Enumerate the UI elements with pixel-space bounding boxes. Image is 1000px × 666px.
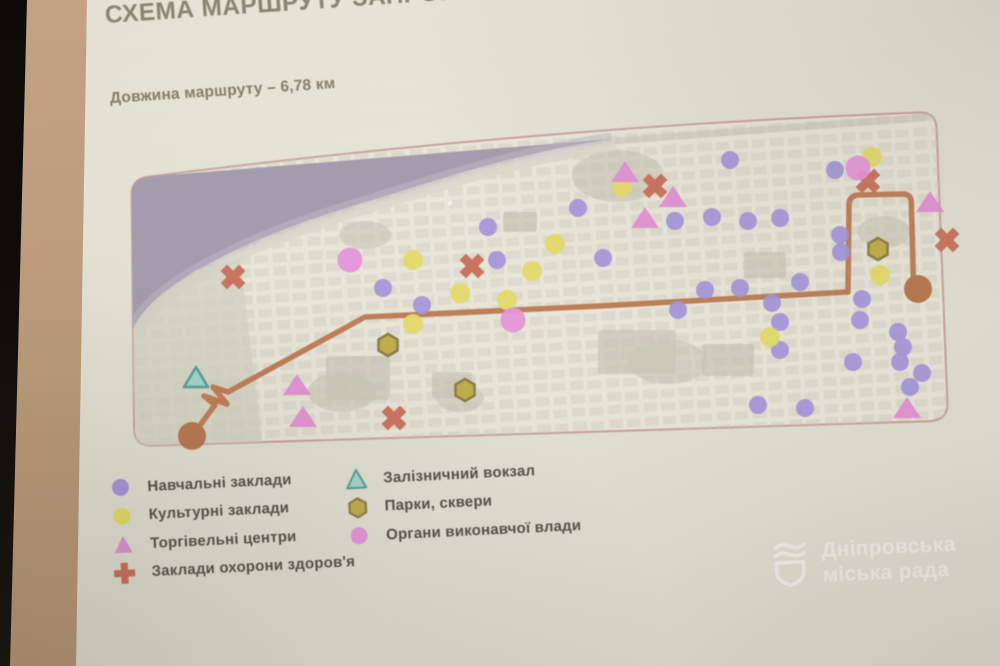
cultural-marker [760, 327, 780, 347]
legend-column-left: Навчальні закладиКультурні закладиТоргів… [108, 466, 356, 592]
railway-legend-icon [344, 466, 369, 491]
watermark-line2: міська рада [822, 557, 957, 588]
educational-marker [479, 218, 497, 236]
legend-label: Торгівельні центри [150, 527, 297, 551]
educational-marker [831, 226, 849, 244]
educational-marker [913, 364, 931, 382]
legend-label: Заклади охорони здоров'я [151, 553, 355, 580]
projection-photo: СХЕМА МАРШРУТУ ЗАПРОПОНОВАНОГО Довжина м… [0, 0, 1000, 666]
educational-marker [721, 151, 739, 169]
educational-marker [666, 212, 684, 230]
educational-marker [851, 311, 869, 329]
educational-marker [669, 301, 687, 319]
parks-marker [379, 334, 398, 356]
legend-label: Парки, сквери [384, 492, 492, 514]
executive-marker [338, 248, 363, 273]
educational-marker [894, 338, 912, 356]
cultural-marker [497, 290, 517, 310]
educational-marker [749, 396, 767, 414]
executive-marker [846, 156, 871, 181]
educational-marker [569, 199, 587, 217]
cultural-marker [403, 250, 423, 270]
cultural-marker [403, 314, 423, 334]
educational-marker [731, 279, 749, 297]
parks-marker [869, 238, 888, 260]
educational-marker [826, 161, 844, 179]
legend-label: Навчальні заклади [147, 471, 292, 495]
educational-marker [844, 353, 862, 371]
cultural-marker [870, 265, 890, 285]
city-council-watermark: Дніпровська міська рада [769, 532, 958, 593]
educational-marker [703, 208, 721, 226]
educational-marker [796, 399, 814, 417]
health-legend-icon [112, 560, 137, 585]
executive-marker [501, 308, 526, 333]
educational-marker [853, 290, 871, 308]
cultural-legend-icon [109, 503, 134, 528]
legend-item-parks: Парки, сквери [345, 486, 580, 517]
educational-marker [488, 251, 506, 269]
cultural-marker [545, 234, 565, 254]
parks-legend-icon [345, 495, 370, 520]
slide: СХЕМА МАРШРУТУ ЗАПРОПОНОВАНОГО Довжина м… [0, 0, 1000, 666]
cultural-marker [450, 283, 470, 303]
legend-column-right: Залізничний вокзалПарки, сквериОргани ви… [344, 458, 582, 555]
educational-marker [763, 294, 781, 312]
educational-legend-icon [108, 475, 133, 500]
legend-label: Органи виконавчої влади [386, 516, 582, 543]
city-council-logo-icon [769, 538, 811, 593]
educational-marker [594, 249, 612, 267]
parks-marker [456, 379, 475, 401]
educational-marker [791, 273, 809, 291]
legend-item-cultural: Культурні заклади [109, 495, 352, 527]
educational-marker [771, 209, 789, 227]
legend-label: Культурні заклади [148, 499, 289, 523]
educational-marker [413, 296, 431, 314]
legend-item-executive: Органи виконавчої влади [347, 515, 582, 546]
route-endpoint [178, 422, 206, 450]
educational-marker [374, 279, 392, 297]
watermark-text: Дніпровська міська рада [821, 532, 957, 588]
educational-marker [832, 243, 850, 261]
legend-item-health: Заклади охорони здоров'я [112, 552, 355, 584]
boat-dot [448, 201, 453, 206]
educational-marker [696, 281, 714, 299]
educational-marker [739, 212, 757, 230]
executive-legend-icon [347, 523, 372, 548]
educational-marker [891, 353, 909, 371]
legend-item-shopping: Торгівельні центри [111, 523, 354, 555]
route-endpoint [904, 275, 932, 303]
slide-content: СХЕМА МАРШРУТУ ЗАПРОПОНОВАНОГО Довжина м… [0, 0, 1000, 666]
cultural-marker [522, 261, 542, 281]
educational-marker [901, 378, 919, 396]
shopping-legend-icon [111, 532, 136, 557]
